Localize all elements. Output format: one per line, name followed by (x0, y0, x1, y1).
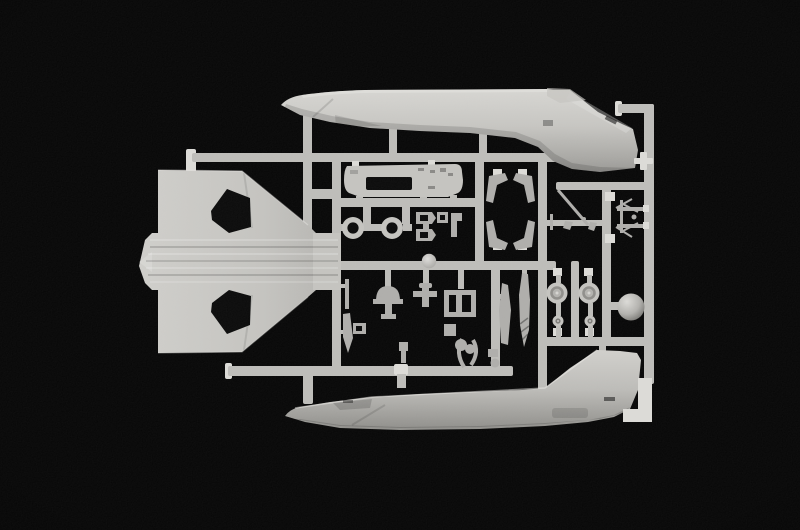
film-grain-overlay (0, 0, 800, 530)
sprue-photo (0, 0, 800, 530)
